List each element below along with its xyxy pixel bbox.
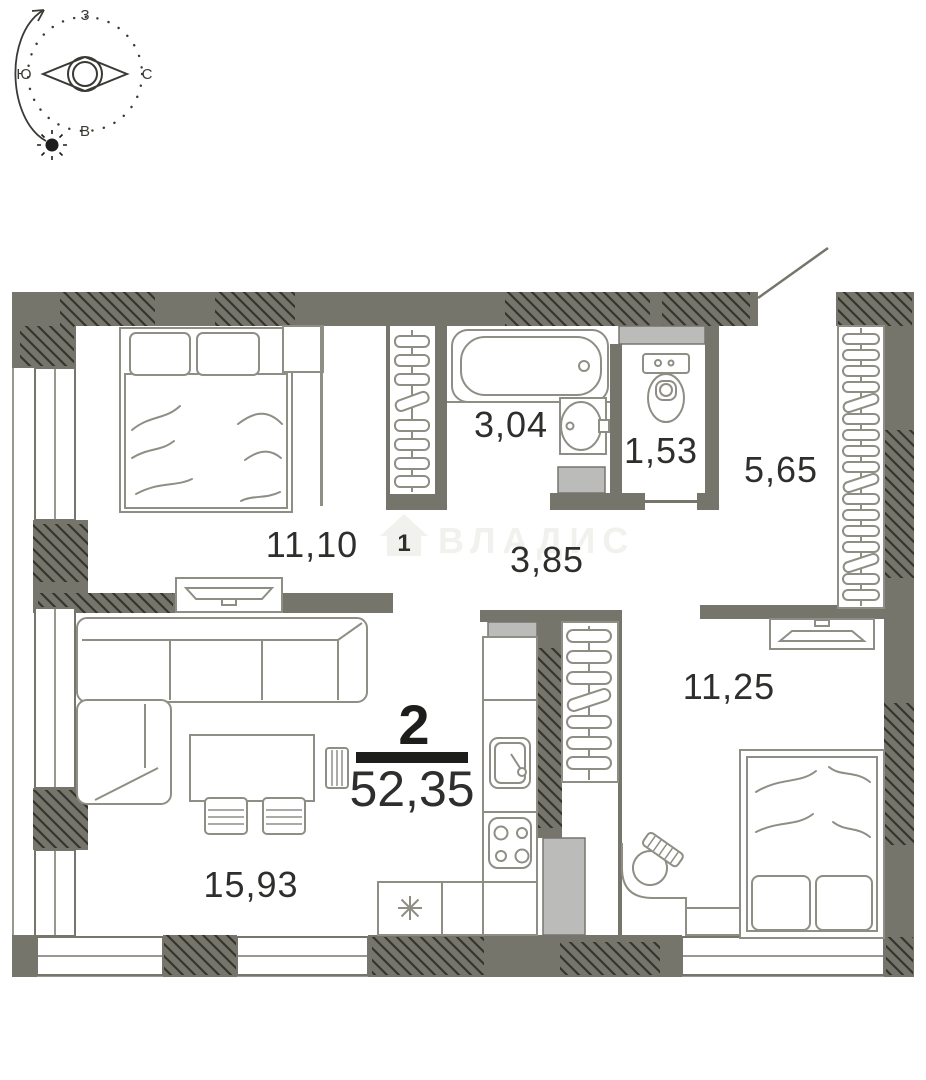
- compass-rose: З С В Ю: [15, 7, 152, 160]
- svg-text:1: 1: [397, 530, 410, 557]
- bed-1: [120, 328, 292, 512]
- snowflake-icon: [398, 896, 422, 920]
- bathroom-sink: [560, 398, 609, 454]
- room-area-label-living: 15,93: [203, 864, 298, 905]
- room-area-label-bathroom: 3,04: [474, 404, 548, 445]
- compass-label-north: С: [142, 66, 153, 83]
- wc-partition: [610, 344, 622, 493]
- room-area-label-wc: 1,53: [624, 430, 698, 471]
- hall-partition: [705, 326, 719, 502]
- chair: [205, 798, 247, 834]
- corridor-shaft: [543, 838, 585, 935]
- wc-shaft: [619, 326, 705, 344]
- chair: [263, 798, 305, 834]
- compass-label-south: Ю: [16, 66, 31, 83]
- compass-label-west: З: [80, 7, 89, 24]
- pillow: [130, 333, 190, 375]
- wardrobe-corridor: [562, 622, 618, 782]
- room-area-label-bedroom1: 11,10: [266, 524, 358, 565]
- wardrobe-hall: [838, 326, 884, 608]
- room-area-label-hallway: 5,65: [744, 449, 818, 490]
- window-living-bottom-1: [37, 937, 163, 975]
- floor-plan-canvas: З С В Ю: [0, 0, 926, 1080]
- fridge: [378, 882, 442, 935]
- compass-label-east: В: [80, 123, 90, 140]
- floor-plan-page: З С В Ю: [0, 0, 926, 1080]
- compass-arrowhead: [32, 10, 44, 21]
- room-area-label-bedroom2: 11,25: [683, 666, 775, 707]
- kitchen-sink: [490, 738, 530, 788]
- window-living-bottom-2: [237, 937, 368, 975]
- kitchen-top-wall: [480, 610, 622, 622]
- room-area-label-corridor: 3,85: [510, 539, 584, 580]
- wc-threshold: [645, 500, 697, 503]
- window-living-1: [35, 608, 75, 788]
- window-bedroom2-bottom: [682, 937, 884, 975]
- bathroom-partition: [435, 326, 447, 494]
- kitchen-shaft: [488, 622, 537, 638]
- pillow: [197, 333, 259, 375]
- pillow: [752, 876, 810, 930]
- sun-icon: [37, 130, 67, 160]
- apartment-total-area: 52,35: [349, 761, 474, 817]
- pillow: [816, 876, 872, 930]
- tv-unit-bedroom1: [176, 578, 282, 612]
- compass-eye-icon: [43, 57, 127, 91]
- tv-unit-bedroom2: [770, 619, 874, 649]
- bed-2: [740, 750, 884, 938]
- apartment-rooms-count: 2: [398, 693, 429, 756]
- stove: [489, 818, 531, 868]
- bathroom-shaft: [558, 467, 605, 493]
- entrance-door-leaf: [758, 248, 828, 298]
- nightstand-bedroom2: [686, 908, 740, 935]
- bathtub: [447, 330, 610, 402]
- window-living-2: [35, 850, 75, 936]
- window-bedroom1: [35, 368, 75, 520]
- chair: [326, 748, 348, 788]
